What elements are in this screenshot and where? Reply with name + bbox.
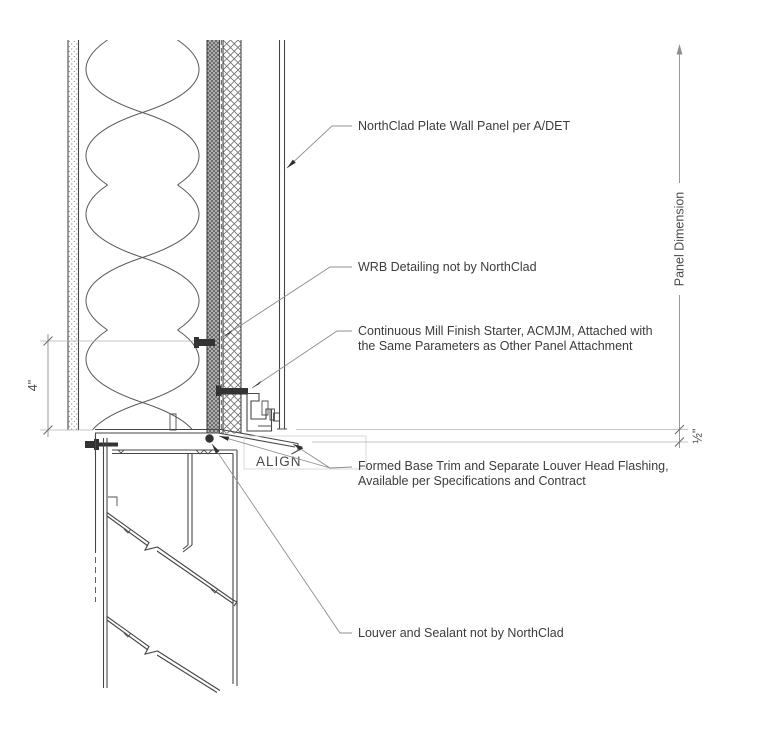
leader-wrb: [223, 267, 352, 337]
leader-starter: [252, 331, 352, 388]
dim-panel-label: Panel Dimension: [673, 192, 687, 287]
sealant-joint: [205, 434, 213, 442]
louver-jamb: [104, 438, 108, 688]
dim-half-inch-label: ½": [691, 429, 705, 444]
note-base-trim-line1: Formed Base Trim and Separate Louver Hea…: [358, 459, 669, 473]
align-label: ALIGN: [256, 454, 302, 469]
louver-blade-lower: [107, 617, 220, 693]
rigid-insulation-crosshatch-layer: [223, 40, 241, 434]
note-starter-line2: the Same Parameters as Other Panel Attac…: [358, 339, 633, 353]
panel-face: [274, 40, 288, 429]
louver-anchor-bolt: [85, 439, 118, 450]
louver-assembly: [96, 433, 238, 693]
louver-blade-upper: [107, 513, 237, 607]
annotation-notes: NorthClad Plate Wall Panel per A/DET WRB…: [358, 119, 669, 640]
interior-finish-layer: [68, 40, 79, 430]
sheathing-layer: [207, 40, 220, 434]
batt-insulation-layer: [79, 40, 208, 430]
dimension-panel: Panel Dimension ½": [296, 44, 705, 448]
note-louver: Louver and Sealant not by NorthClad: [358, 626, 564, 640]
note-panel: NorthClad Plate Wall Panel per A/DET: [358, 119, 570, 133]
louver-head-frame: [112, 450, 237, 686]
leader-panel: [287, 126, 352, 168]
jamb-bracket: [108, 497, 117, 506]
note-wrb: WRB Detailing not by NorthClad: [358, 260, 537, 274]
dim-4in-label: 4": [26, 380, 40, 391]
wall-section-detail-drawing: ALIGN 4" Panel Dimension ½": [0, 0, 768, 735]
note-starter-line1: Continuous Mill Finish Starter, ACMJM, A…: [358, 324, 653, 338]
wall-assembly: [68, 40, 287, 434]
note-base-trim-line2: Available per Specifications and Contrac…: [358, 474, 586, 488]
